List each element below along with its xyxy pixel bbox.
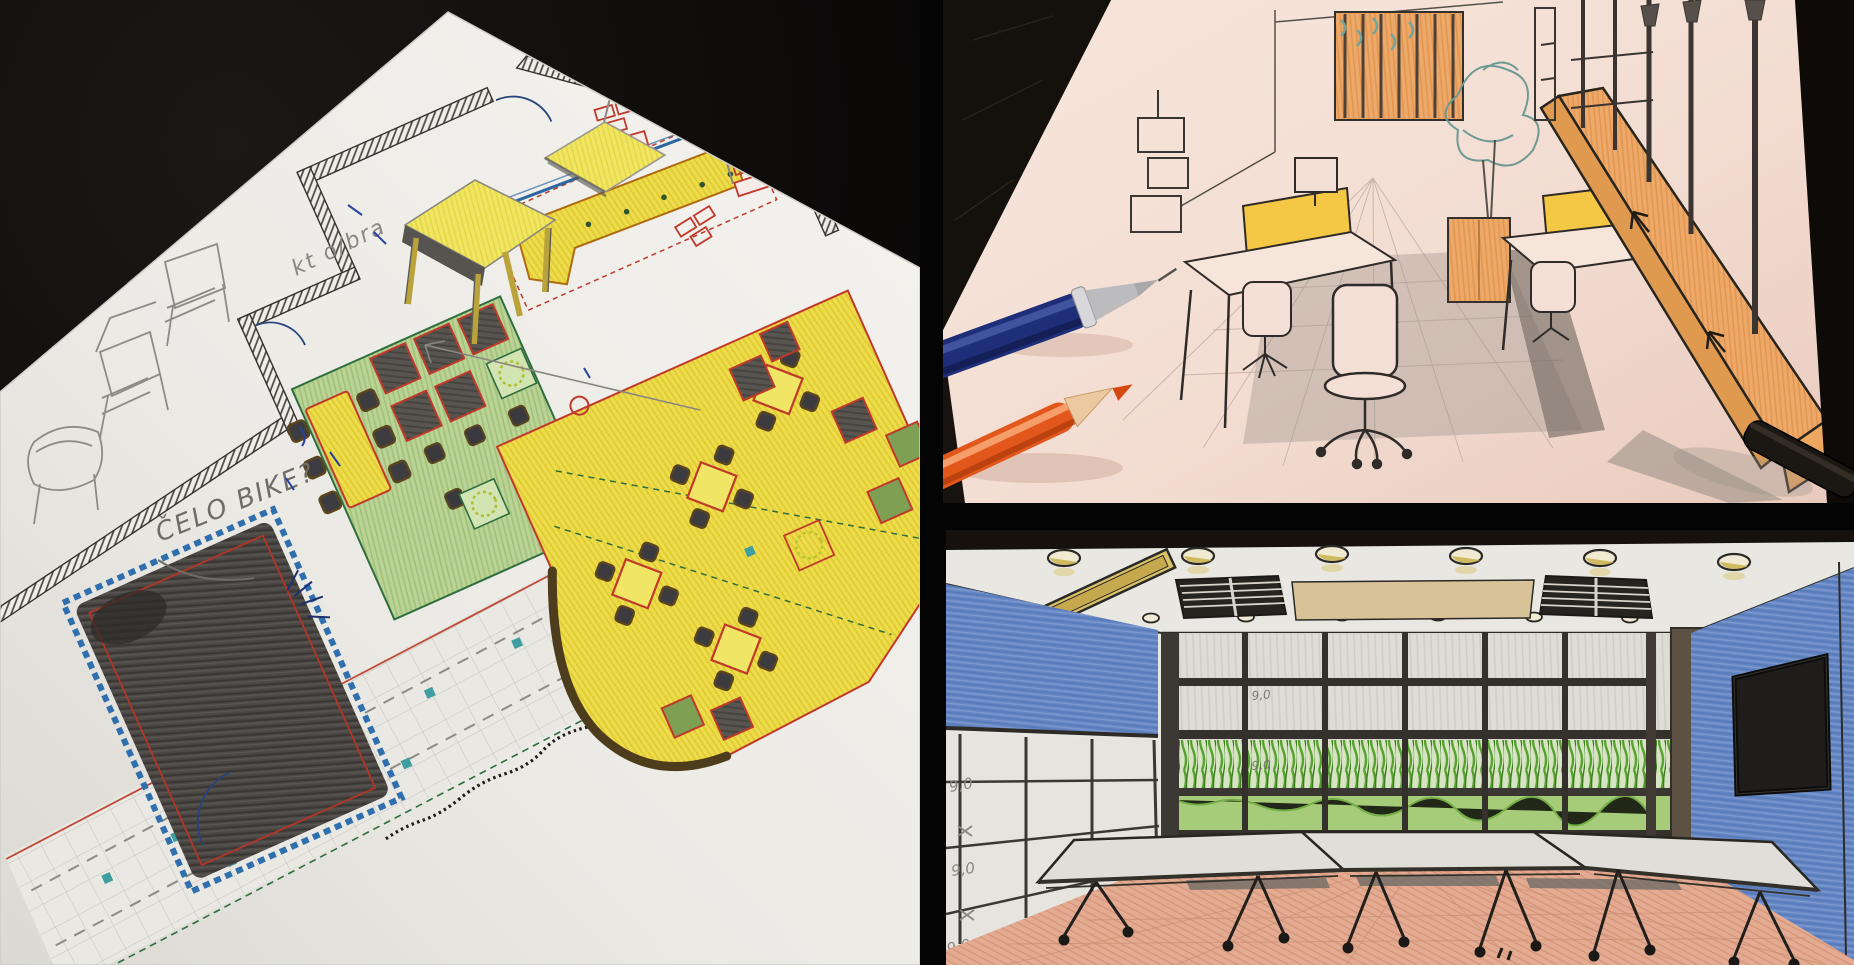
panel-floor-plan-photo: kt o/bra ČELO BIKE? (0, 0, 920, 965)
monitor-sketch (1295, 158, 1337, 192)
lamp-head-icon (1745, 0, 1765, 20)
panel-meeting-room-photo: 9,0 9,0 9,0 (946, 530, 1854, 965)
dim-note: 9,0 (950, 859, 976, 880)
office-perspective-sketch (943, 0, 1854, 503)
wall-tv-screen (1734, 656, 1829, 794)
ceiling-panel (1292, 580, 1534, 620)
transom-bar (1179, 678, 1646, 686)
glass-dim-note: 9,0 (1251, 757, 1272, 773)
glass-dim-note: 9,0 (1251, 687, 1272, 703)
glass-curtain-wall: 9,0 9,0 (1161, 628, 1707, 864)
meeting-room-sketch: 9,0 9,0 9,0 (946, 530, 1854, 965)
panel-office-photo (943, 0, 1854, 503)
floor-plan-sketch: kt o/bra ČELO BIKE? (0, 0, 920, 965)
window-shade (1335, 12, 1463, 120)
sketch-collage: kt o/bra ČELO BIKE? (0, 0, 1854, 965)
vent-grilles (1176, 576, 1652, 620)
